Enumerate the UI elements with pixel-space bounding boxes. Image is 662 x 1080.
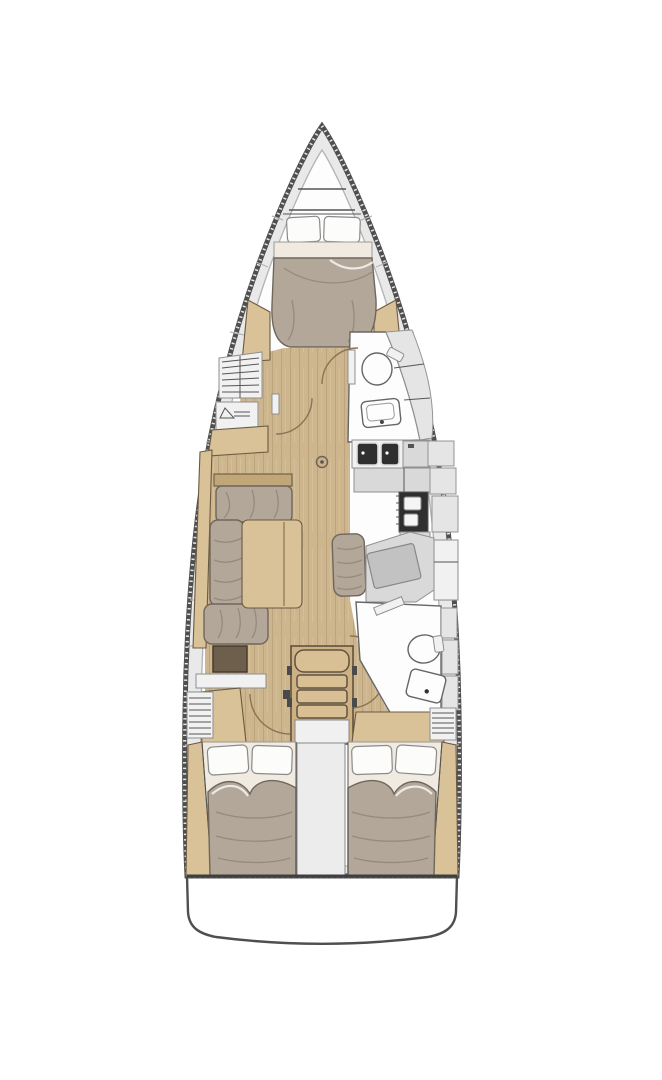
- shelf-unit: [219, 352, 262, 398]
- hanging-locker: [216, 402, 258, 430]
- transom: [187, 876, 457, 944]
- pillow: [324, 216, 361, 242]
- center-walkway: [297, 743, 345, 876]
- sink-icon: [361, 398, 402, 428]
- duvet: [208, 781, 296, 876]
- hull-lockers: [428, 441, 458, 532]
- salon-step: [196, 674, 266, 688]
- pillow: [395, 745, 437, 776]
- toilet-icon: [362, 353, 392, 385]
- vent-locker: [187, 692, 213, 738]
- counter-top: [403, 441, 429, 467]
- counter-mid: [354, 468, 430, 492]
- duvet: [348, 781, 436, 876]
- aft-head-lockers: [441, 608, 458, 710]
- forward-head: [348, 330, 433, 442]
- pillow: [207, 745, 249, 776]
- yacht-floor-plan: [0, 0, 662, 1080]
- pillow: [286, 216, 320, 243]
- pillow: [252, 745, 293, 774]
- aft-cabin-starboard: [348, 708, 458, 876]
- pillow: [352, 745, 393, 774]
- forward-cabin-door-leaf: [272, 394, 279, 414]
- toilet-tank: [433, 635, 444, 652]
- port-cabinet: [208, 426, 268, 456]
- settee-side-cushion: [210, 520, 244, 606]
- double-sink-icon: [357, 443, 399, 465]
- salon-table: [242, 520, 302, 608]
- stair-landing: [295, 720, 349, 743]
- settee-backrest: [214, 474, 292, 486]
- nav-cabinet: [434, 540, 458, 600]
- companionway-stairs: [295, 650, 349, 718]
- storage-box: [213, 646, 247, 672]
- mast-post-center: [320, 460, 324, 464]
- stove-icon: [396, 492, 428, 532]
- floor-plan-canvas: [0, 0, 662, 1080]
- nav-station: [332, 532, 458, 602]
- head-door-leaf: [348, 350, 355, 384]
- vent-locker: [430, 708, 456, 740]
